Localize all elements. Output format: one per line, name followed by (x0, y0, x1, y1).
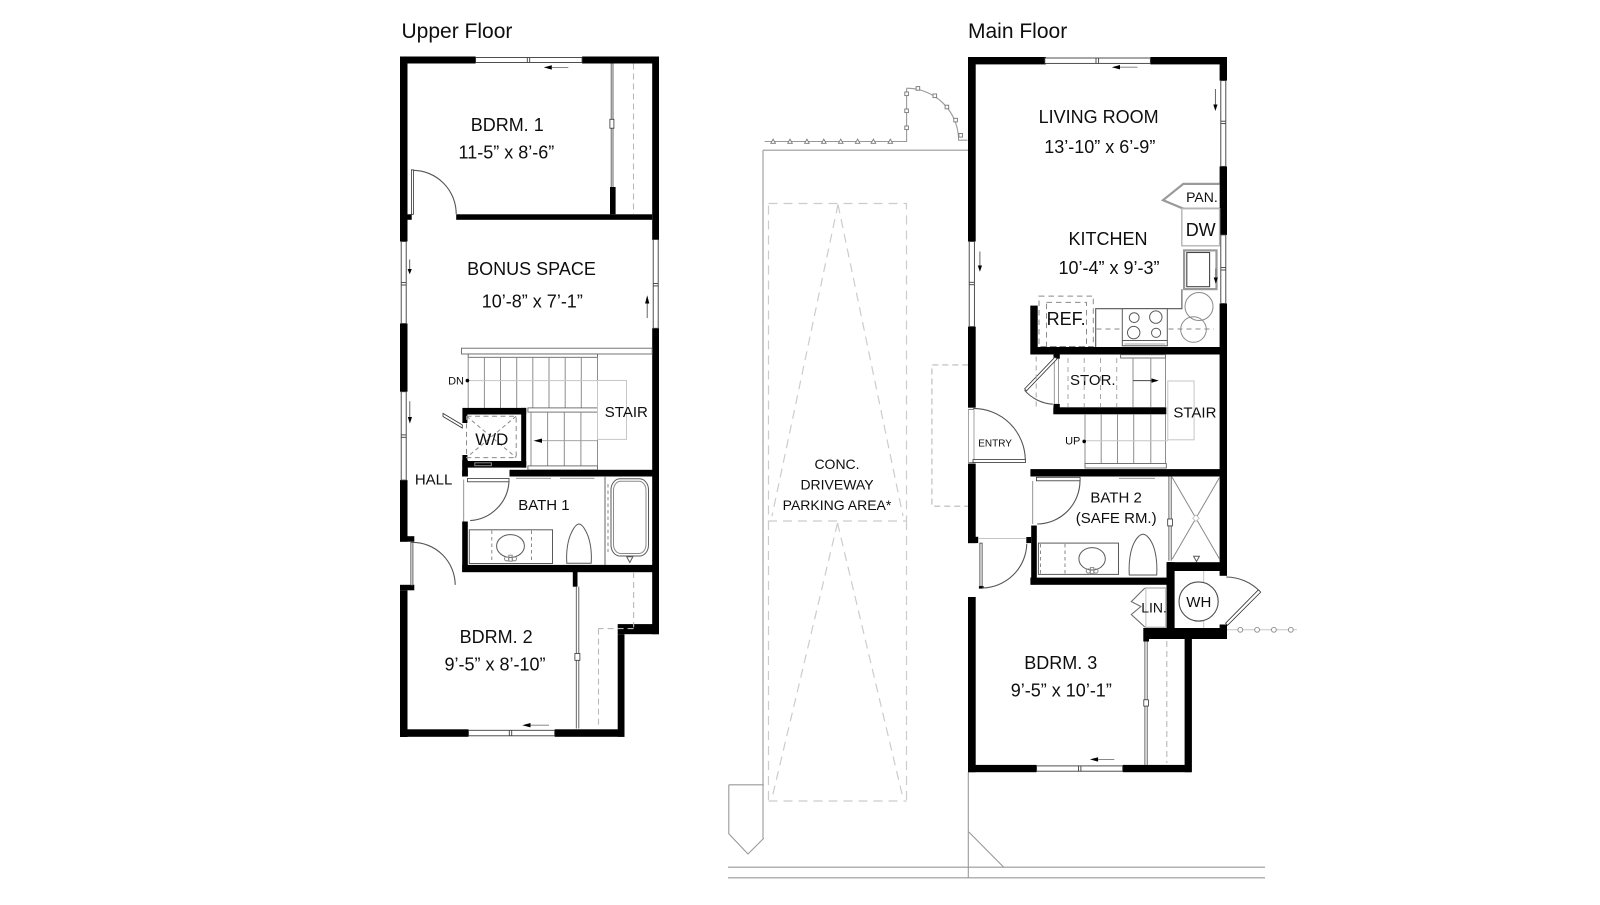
svg-text:W/D: W/D (475, 430, 508, 449)
svg-text:10’-4” x 9’-3”: 10’-4” x 9’-3” (1058, 258, 1159, 278)
svg-text:9’-5” x 8’-10”: 9’-5” x 8’-10” (444, 655, 545, 675)
svg-text:CONC.: CONC. (814, 456, 859, 472)
svg-text:LIVING ROOM: LIVING ROOM (1039, 107, 1159, 127)
svg-text:STAIR: STAIR (605, 404, 648, 421)
svg-text:10’-8” x 7’-1”: 10’-8” x 7’-1” (482, 292, 583, 312)
svg-text:STAIR: STAIR (1173, 405, 1216, 422)
svg-text:HALL: HALL (415, 472, 453, 489)
svg-text:13’-10” x 6’-9”: 13’-10” x 6’-9” (1044, 137, 1155, 157)
svg-text:(SAFE RM.): (SAFE RM.) (1076, 510, 1157, 527)
svg-text:WH: WH (1186, 594, 1211, 611)
svg-text:ENTRY: ENTRY (978, 438, 1012, 449)
svg-text:11-5” x 8’-6”: 11-5” x 8’-6” (459, 143, 555, 163)
svg-text:9’-5” x 10’-1”: 9’-5” x 10’-1” (1011, 681, 1112, 701)
svg-text:BATH 1: BATH 1 (518, 497, 569, 514)
svg-text:DW: DW (1186, 220, 1216, 240)
svg-text:Main Floor: Main Floor (968, 20, 1067, 43)
svg-text:BDRM. 1: BDRM. 1 (471, 115, 544, 135)
svg-text:UP: UP (1065, 435, 1080, 447)
svg-text:Upper Floor: Upper Floor (402, 20, 513, 43)
svg-text:BDRM. 3: BDRM. 3 (1024, 653, 1097, 673)
svg-text:REF.: REF. (1047, 309, 1086, 329)
svg-text:BONUS SPACE: BONUS SPACE (467, 259, 596, 279)
svg-text:PAN.: PAN. (1186, 189, 1218, 205)
svg-text:DN: DN (448, 375, 464, 387)
svg-text:PARKING AREA*: PARKING AREA* (783, 497, 892, 513)
svg-text:LIN.: LIN. (1141, 599, 1167, 615)
svg-text:KITCHEN: KITCHEN (1068, 229, 1147, 249)
svg-text:DRIVEWAY: DRIVEWAY (800, 477, 874, 493)
svg-text:BDRM. 2: BDRM. 2 (460, 627, 533, 647)
svg-text:STOR.: STOR. (1070, 372, 1116, 389)
svg-text:BATH 2: BATH 2 (1090, 490, 1141, 507)
